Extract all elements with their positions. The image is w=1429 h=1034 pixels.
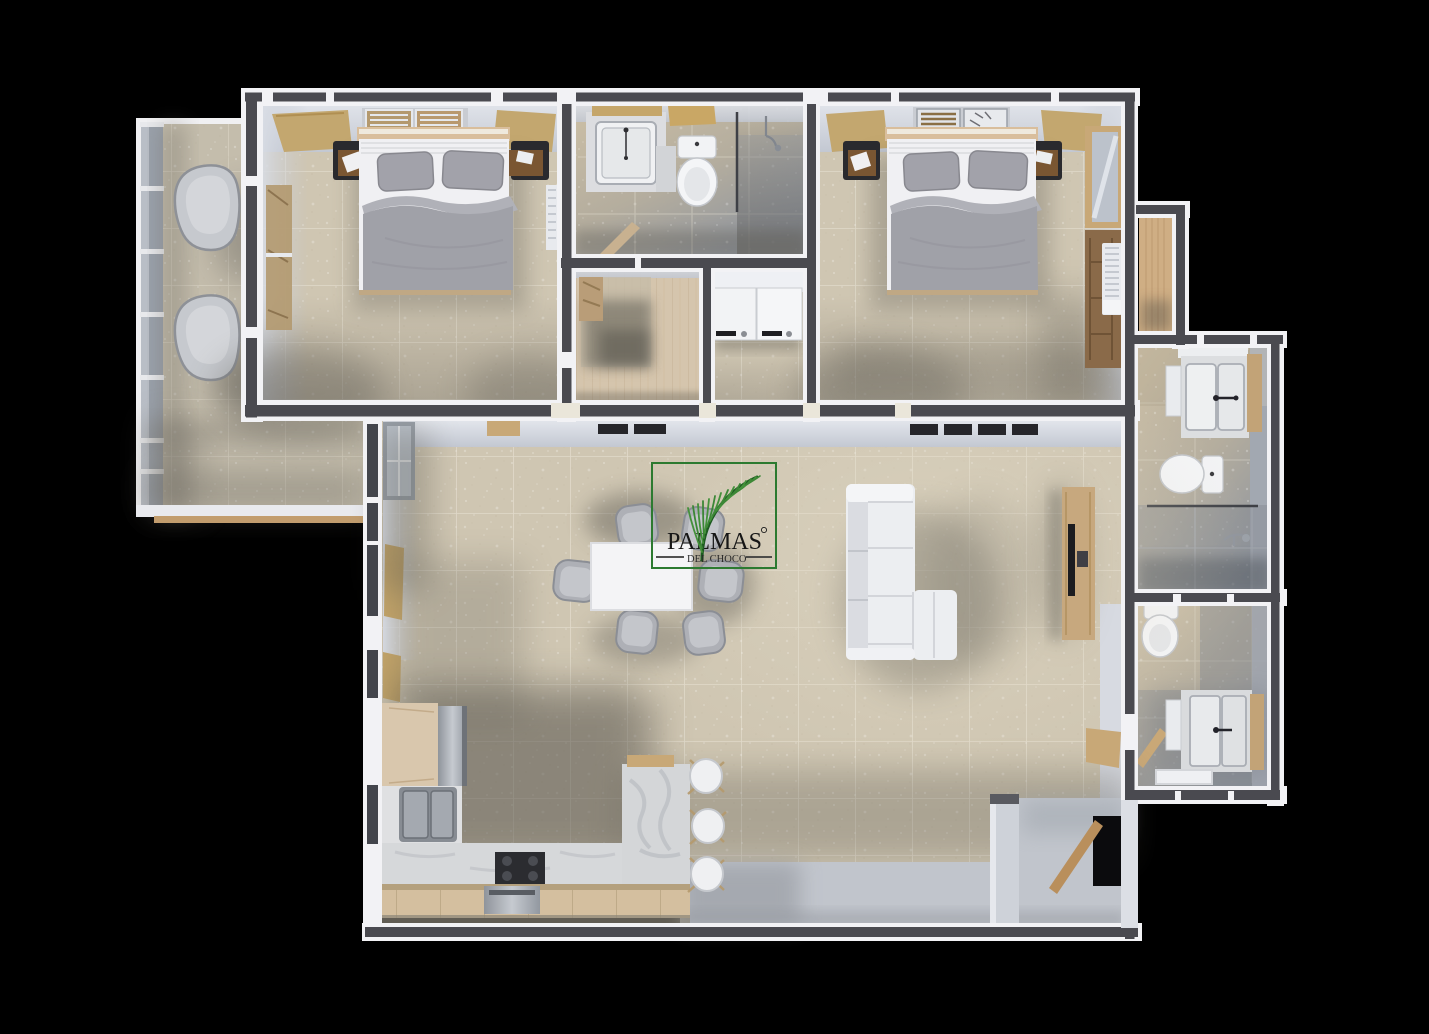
svg-text:PALMAS: PALMAS — [667, 529, 762, 555]
svg-text:DEL CHOCO: DEL CHOCO — [687, 554, 747, 565]
